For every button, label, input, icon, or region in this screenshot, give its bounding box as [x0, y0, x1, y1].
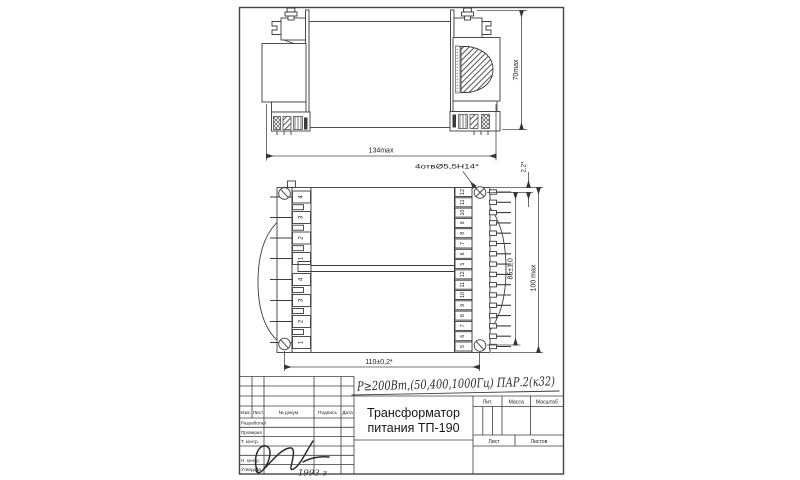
row-utverdil: Утвердил — [241, 467, 262, 472]
col-izm: Изм. — [241, 410, 251, 416]
left-terminal-strip: 4 3 2 1 4 3 2 1 — [270, 181, 311, 353]
handwritten-year: 1993 г — [298, 469, 327, 479]
left-coil — [262, 44, 310, 135]
label-mass: Масса — [509, 400, 524, 406]
col-list: Лист — [253, 410, 264, 416]
terminal-number: 9 — [460, 304, 466, 307]
terminal-number: 8 — [460, 232, 466, 235]
col-data: Дата — [342, 410, 353, 416]
terminal-number: 10 — [460, 292, 466, 298]
scanned-drawing-sheet: 134max 70max — [0, 0, 800, 480]
col-ndokum: № докум. — [278, 410, 299, 416]
terminal-number: 5 — [460, 345, 466, 348]
dim-top-height-label: 70max — [513, 59, 520, 81]
side-view: 134max 70max — [262, 8, 527, 161]
left-bracket — [272, 8, 306, 48]
drawing-canvas: 134max 70max — [0, 0, 800, 480]
row-tkontr: Т. контр. — [241, 439, 259, 444]
signature — [303, 457, 329, 462]
terminal-number: 5 — [460, 263, 466, 266]
terminal-number: 7 — [460, 242, 466, 245]
dim-total-height-label: 100 max — [530, 264, 537, 291]
row-proveril: Проверил — [241, 430, 262, 435]
front-view: 4 3 2 1 4 3 2 1 — [258, 161, 543, 371]
label-scale: Масштаб — [536, 400, 558, 406]
terminal-number: 11 — [460, 282, 466, 288]
dim-mid-height-label: 85±1,0 — [508, 258, 515, 279]
terminal-number: 11 — [460, 199, 466, 205]
doc-title-line1: Трансформатор — [367, 406, 460, 420]
dim-top-offset: 2,2* — [521, 161, 529, 207]
dim-top-offset-label: 2,2* — [521, 161, 528, 173]
right-coil — [450, 38, 500, 135]
col-podpis: Подпись — [318, 410, 337, 416]
terminal-number: 12 — [460, 189, 466, 195]
doc-title-line2: питания ТП-190 — [367, 421, 459, 435]
terminal-number: 8 — [460, 314, 466, 317]
terminal-number: 7 — [460, 324, 466, 327]
row-nkontr: Н. контр. — [241, 458, 260, 463]
label-sheets: Листов — [531, 439, 548, 445]
label-lit: Лит. — [483, 400, 493, 406]
holes-callout: 4отвØ5,5Н14* — [415, 164, 480, 188]
dim-top-width-label: 134max — [369, 148, 394, 155]
terminal-number: 9 — [460, 221, 466, 224]
dim-bottom-width-label: 110±0,2* — [365, 359, 393, 366]
terminal-number: 10 — [460, 210, 466, 216]
row-razrabotal: Разработал — [241, 421, 266, 426]
terminal-number: 6 — [460, 252, 466, 255]
label-sheet: Лист — [488, 439, 500, 445]
dim-bottom-width: 110±0,2* — [285, 351, 480, 371]
terminal-number: 6 — [460, 335, 466, 338]
right-terminal-strip: 12 11 10 9 8 7 6 5 12 11 10 9 8 7 6 5 — [455, 187, 512, 353]
terminal-number: 12 — [460, 271, 466, 277]
coil-body — [311, 188, 455, 353]
dim-mid-height: 85±1,0 — [487, 193, 533, 346]
holes-callout-label: 4отвØ5,5Н14* — [415, 164, 480, 171]
handwritten-power-note: P≥200Вт,(50,400,1000Гц) ПАР.2(к32) — [356, 373, 555, 393]
